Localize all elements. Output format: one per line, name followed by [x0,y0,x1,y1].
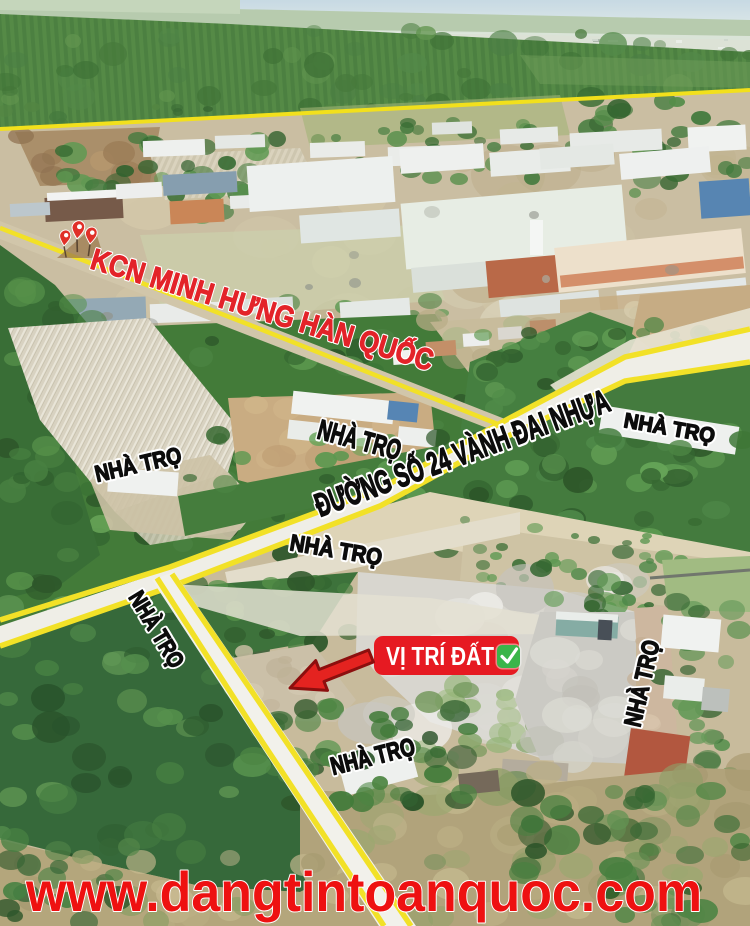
svg-text:VỊ TRÍ ĐẤT: VỊ TRÍ ĐẤT [386,641,494,671]
svg-text:www.dangtintoanquoc.com: www.dangtintoanquoc.com [25,860,702,923]
